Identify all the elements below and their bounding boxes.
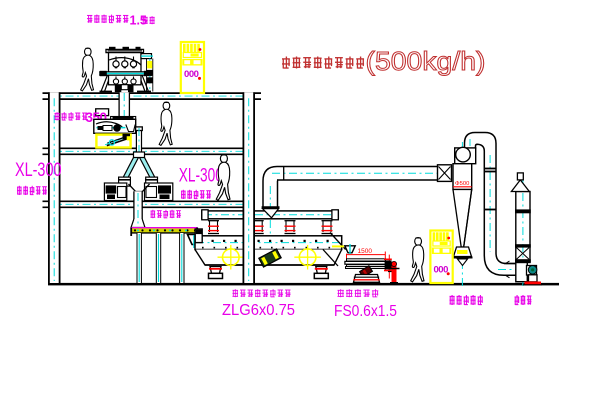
- svg-text:(500kg/h): (500kg/h): [366, 46, 486, 76]
- svg-text:000: 000: [434, 265, 449, 276]
- svg-text:XL-300: XL-300: [15, 159, 62, 181]
- svg-text:FS0.6x1.5: FS0.6x1.5: [334, 303, 397, 320]
- svg-text:1500: 1500: [358, 248, 373, 255]
- svg-text:XL-300: XL-300: [179, 165, 223, 187]
- svg-text:ZLG6x0.75: ZLG6x0.75: [222, 302, 295, 319]
- svg-text:000: 000: [184, 69, 199, 80]
- svg-text:Φ500: Φ500: [455, 181, 469, 187]
